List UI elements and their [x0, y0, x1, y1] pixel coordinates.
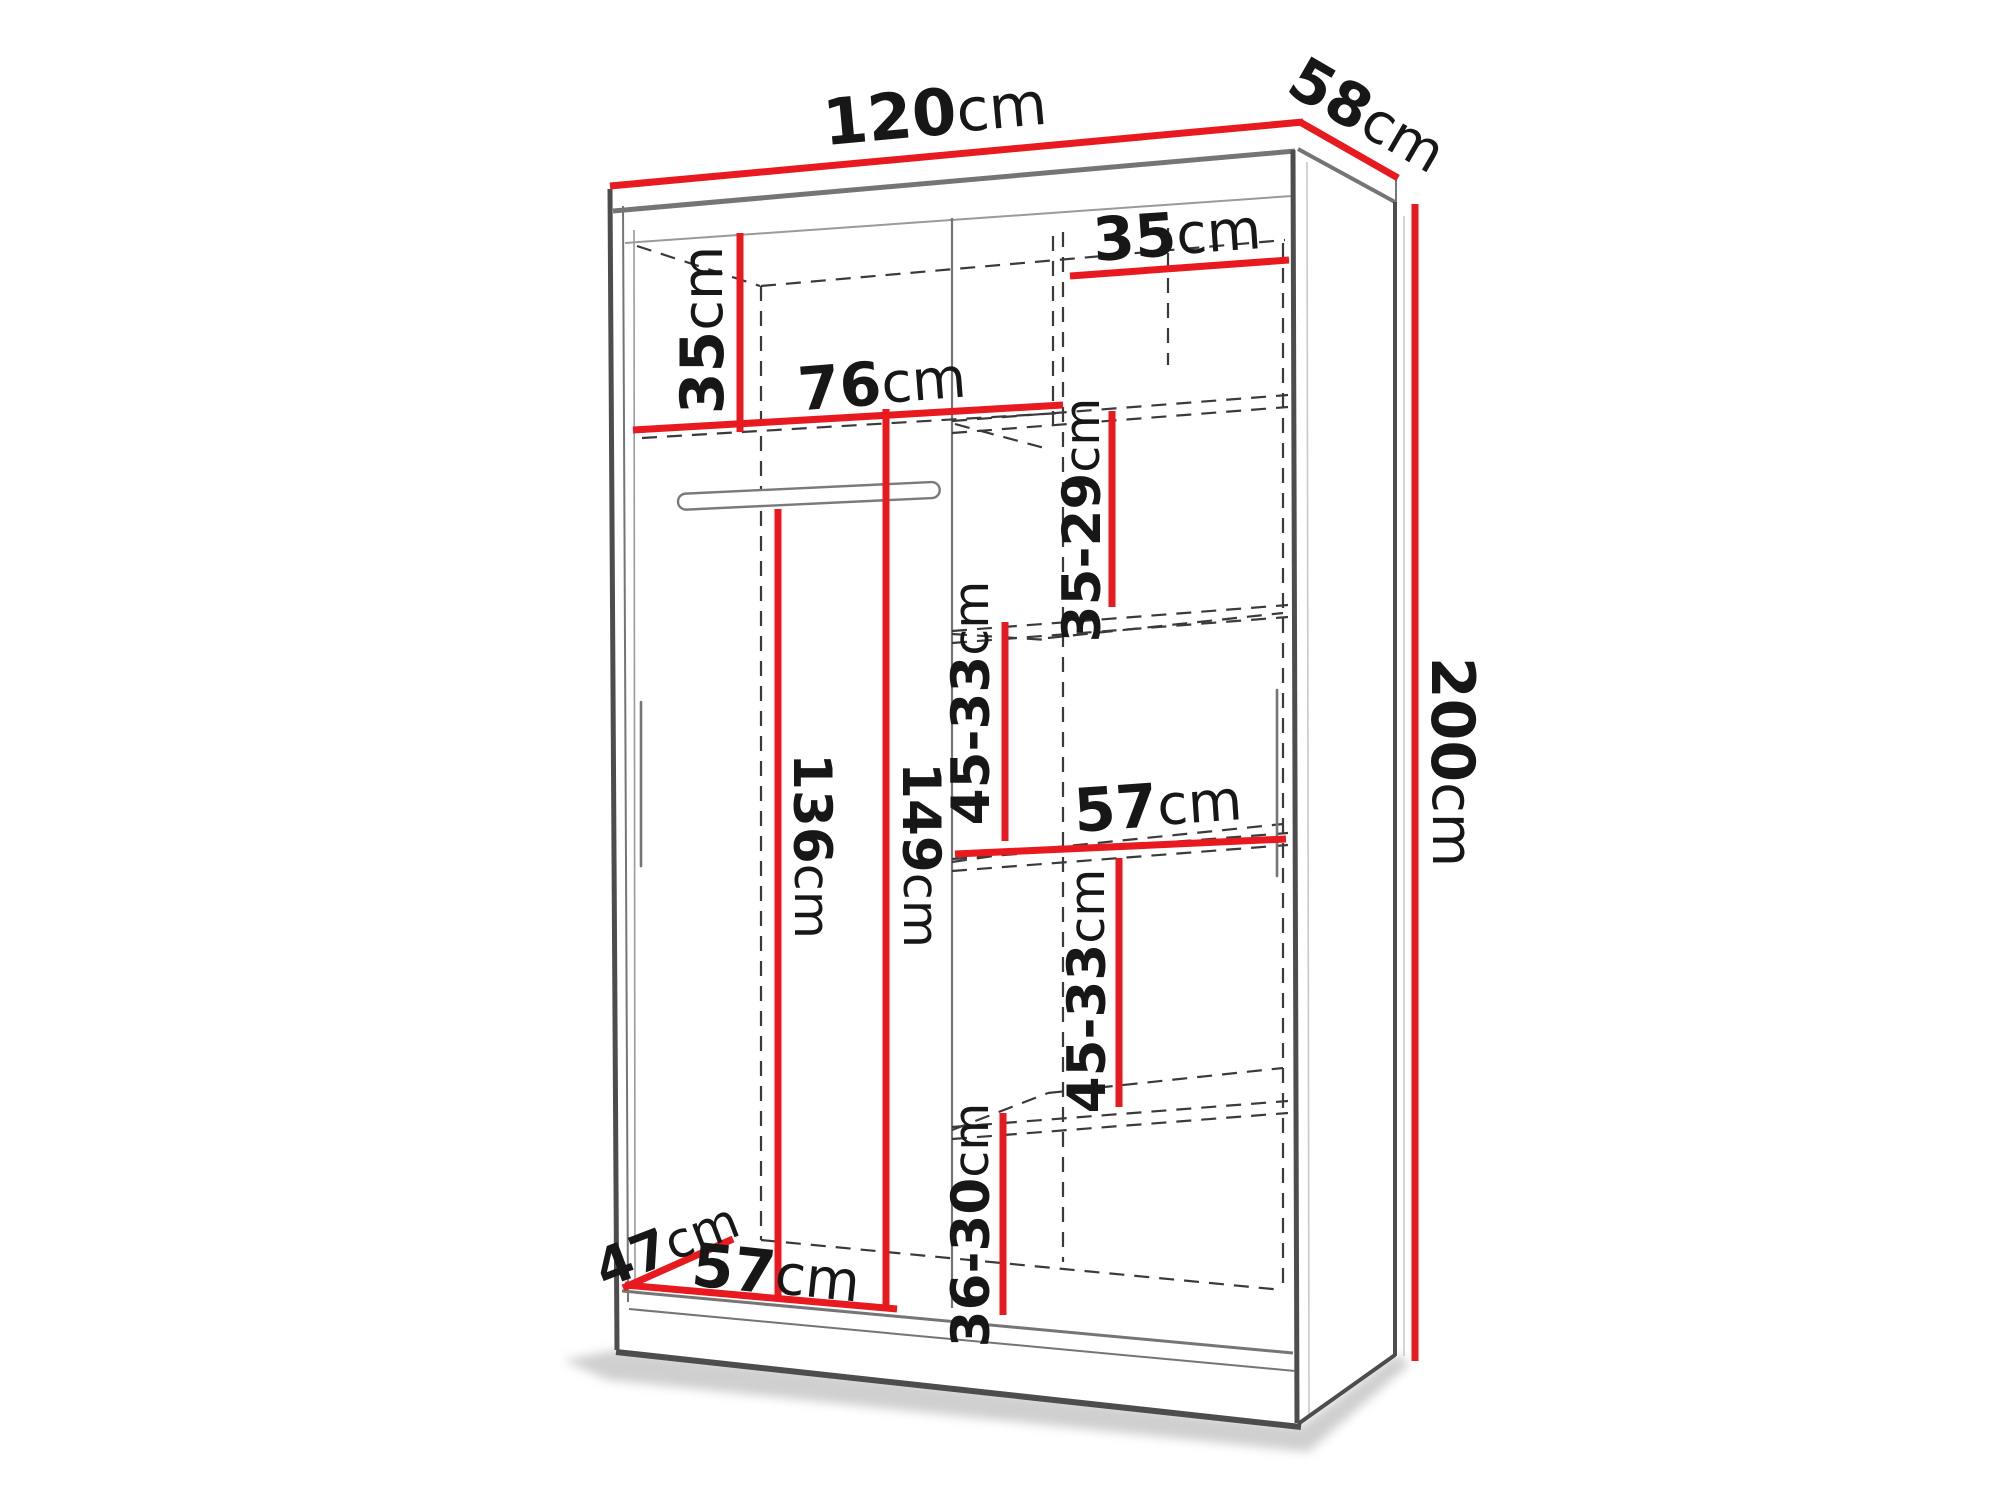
label-shelf-gap-lower: 45-33cm — [1057, 869, 1118, 1114]
label-hanging-height: 136cm — [782, 753, 843, 939]
side-panel — [1296, 126, 1398, 1424]
wardrobe-diagram: 120cm 58cm 200cm 35cm 76cm 35cm 35-29cm … — [0, 0, 2000, 1500]
label-bottom-gap: 36-30cm — [941, 1103, 1002, 1348]
label-shelf-gap-upper: 35-29cm — [1052, 398, 1113, 643]
label-left-top-height: 35cm — [668, 246, 738, 415]
label-total-height: 200cm — [1417, 657, 1487, 867]
label-left-section-height: 149cm — [891, 762, 952, 948]
diagram-canvas: 120cm 58cm 200cm 35cm 76cm 35cm 35-29cm … — [0, 0, 2000, 1500]
